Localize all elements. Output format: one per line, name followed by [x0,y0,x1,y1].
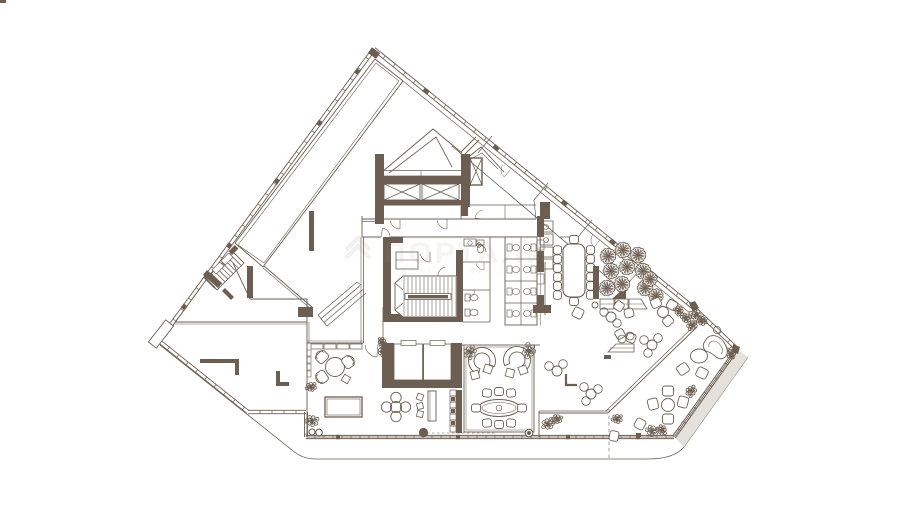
svg-text:REAL ESTATE GROUP: REAL ESTATE GROUP [400,266,549,276]
